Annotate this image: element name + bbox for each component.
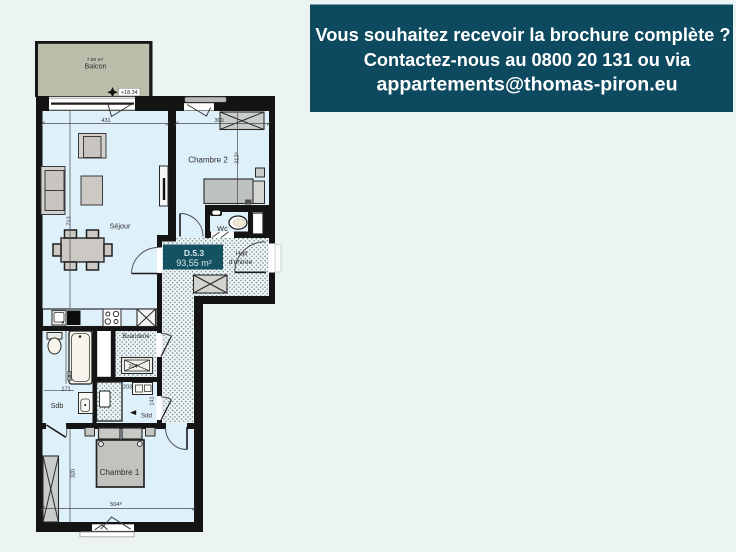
svg-text:Chambre 1: Chambre 1 — [100, 468, 140, 477]
svg-text:D.5.3: D.5.3 — [184, 248, 205, 258]
svg-text:+18.34: +18.34 — [121, 90, 138, 96]
svg-text:d'entrée: d'entrée — [229, 259, 253, 266]
svg-text:Séjour: Séjour — [110, 221, 131, 230]
svg-text:Sdb: Sdb — [51, 401, 64, 410]
svg-text:Sdd: Sdd — [141, 413, 153, 420]
svg-text:504⁸: 504⁸ — [110, 501, 122, 508]
svg-text:320: 320 — [71, 469, 77, 478]
svg-text:313⁸: 313⁸ — [233, 152, 240, 164]
svg-text:Chambre 2: Chambre 2 — [188, 156, 228, 165]
svg-text:Wc: Wc — [217, 224, 228, 233]
svg-text:Balcon: Balcon — [85, 61, 107, 70]
svg-text:204: 204 — [128, 364, 137, 370]
svg-text:Hall: Hall — [236, 251, 248, 258]
svg-text:Contactez-nous au 0800 20 131: Contactez-nous au 0800 20 131 ou via — [364, 50, 691, 70]
svg-text:Buanderie: Buanderie — [122, 334, 150, 340]
svg-text:300: 300 — [214, 118, 223, 124]
svg-text:141: 141 — [150, 396, 156, 405]
svg-text:203: 203 — [123, 385, 132, 391]
svg-text:713: 713 — [66, 216, 72, 225]
svg-text:431: 431 — [101, 118, 110, 124]
svg-text:appartements@thomas-piron.eu: appartements@thomas-piron.eu — [376, 74, 677, 96]
svg-text:93,55 m²: 93,55 m² — [176, 258, 212, 268]
svg-text:171: 171 — [61, 387, 70, 393]
svg-text:Vous souhaitez recevoir la bro: Vous souhaitez recevoir la brochure comp… — [315, 24, 730, 45]
